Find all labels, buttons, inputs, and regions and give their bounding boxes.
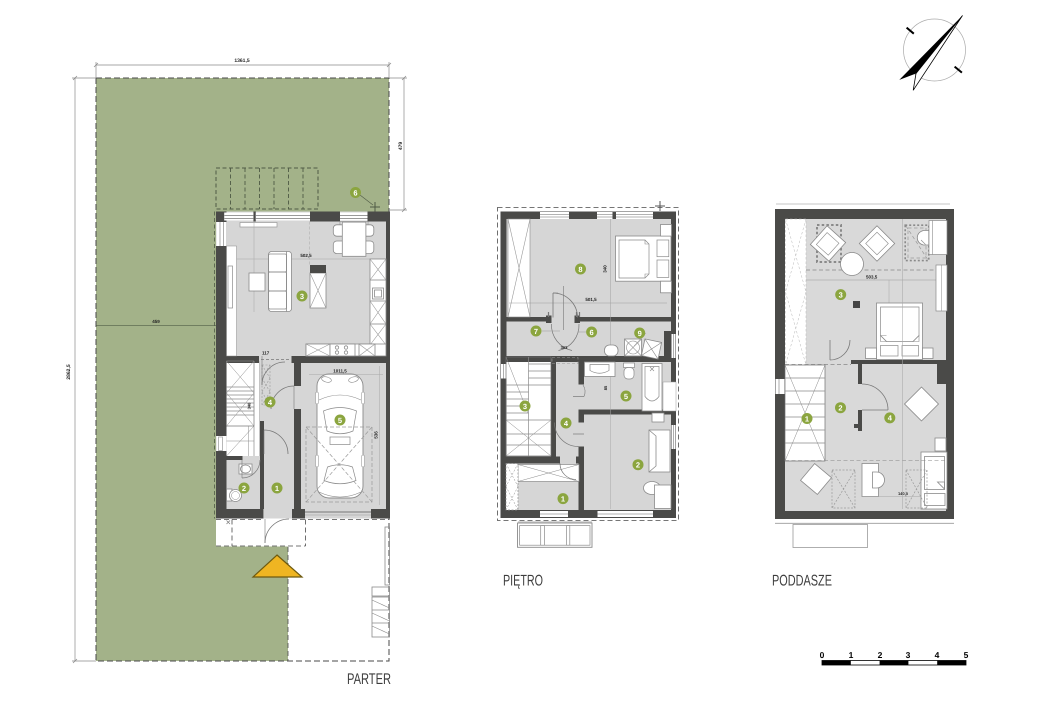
svg-text:PARTER: PARTER bbox=[347, 671, 391, 688]
svg-text:9: 9 bbox=[638, 329, 642, 338]
svg-text:3: 3 bbox=[523, 402, 527, 411]
svg-text:5: 5 bbox=[964, 650, 969, 660]
svg-text:2: 2 bbox=[878, 650, 883, 660]
svg-text:117: 117 bbox=[262, 351, 270, 356]
svg-text:7: 7 bbox=[534, 327, 538, 336]
svg-text:1011,5: 1011,5 bbox=[333, 369, 347, 374]
svg-text:3: 3 bbox=[906, 650, 911, 660]
svg-text:503,5: 503,5 bbox=[866, 275, 878, 280]
svg-text:348: 348 bbox=[247, 402, 252, 409]
svg-text:2: 2 bbox=[242, 484, 246, 493]
svg-text:PIĘTRO: PIĘTRO bbox=[503, 573, 543, 590]
svg-text:2: 2 bbox=[838, 404, 842, 413]
svg-text:502,5: 502,5 bbox=[300, 253, 312, 258]
svg-text:6: 6 bbox=[353, 188, 357, 197]
svg-text:459: 459 bbox=[152, 319, 160, 324]
svg-text:536: 536 bbox=[374, 431, 379, 439]
svg-text:1361,5: 1361,5 bbox=[234, 58, 250, 64]
svg-text:2: 2 bbox=[636, 461, 640, 470]
svg-text:8: 8 bbox=[578, 265, 582, 274]
svg-text:5: 5 bbox=[338, 416, 342, 425]
svg-text:1: 1 bbox=[561, 494, 565, 503]
svg-text:140,5: 140,5 bbox=[898, 491, 909, 496]
svg-text:1: 1 bbox=[275, 484, 279, 493]
svg-text:4: 4 bbox=[935, 650, 940, 660]
svg-text:85: 85 bbox=[603, 385, 608, 390]
svg-text:3: 3 bbox=[300, 292, 304, 301]
svg-text:501,5: 501,5 bbox=[585, 297, 597, 302]
svg-text:479: 479 bbox=[398, 142, 404, 151]
svg-text:PODDASZE: PODDASZE bbox=[772, 573, 832, 590]
svg-text:6: 6 bbox=[590, 328, 594, 337]
svg-text:2862,5: 2862,5 bbox=[66, 364, 72, 380]
svg-text:0: 0 bbox=[820, 650, 825, 660]
svg-text:340: 340 bbox=[603, 265, 608, 273]
svg-text:5: 5 bbox=[624, 392, 628, 401]
svg-text:1: 1 bbox=[849, 650, 854, 660]
svg-text:3: 3 bbox=[839, 290, 843, 299]
svg-text:303: 303 bbox=[561, 345, 568, 350]
svg-text:1: 1 bbox=[805, 414, 809, 423]
